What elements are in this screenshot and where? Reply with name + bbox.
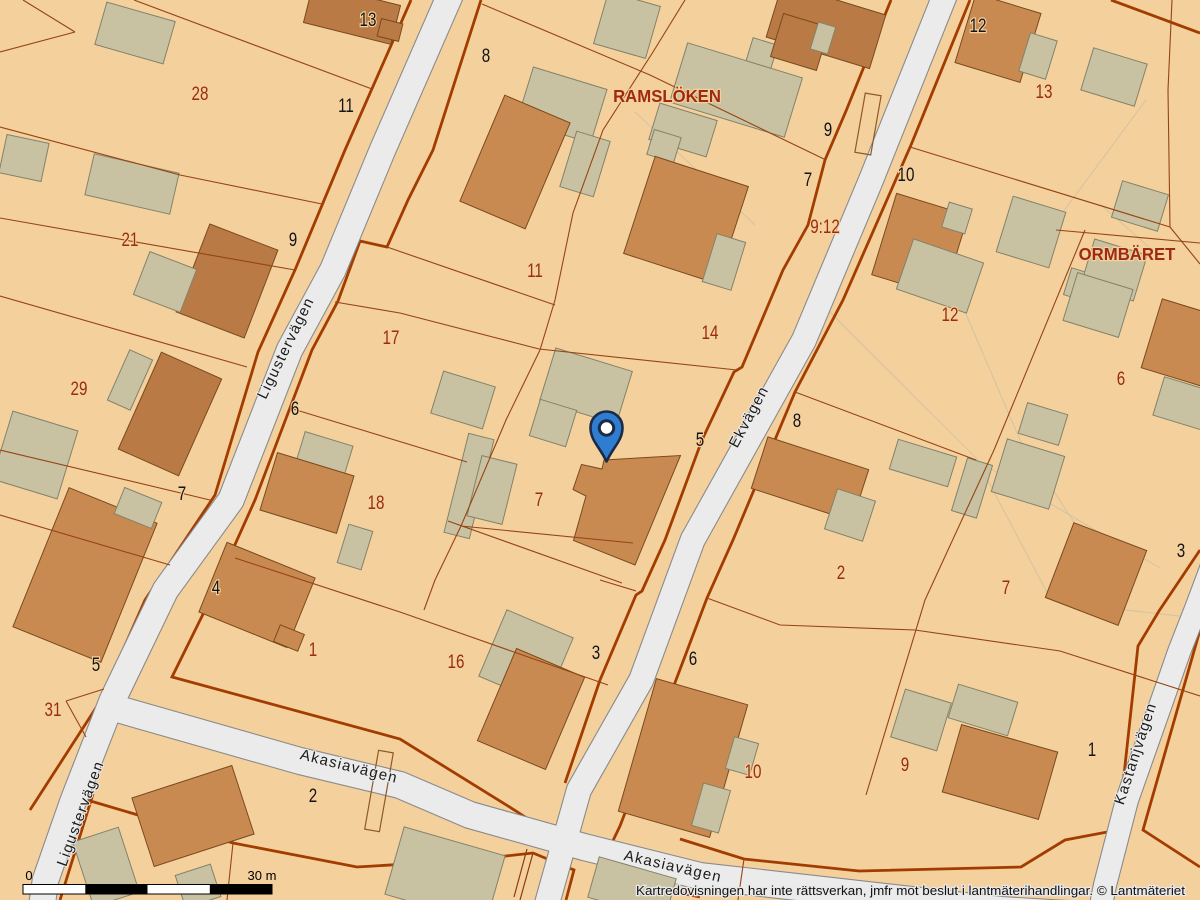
svg-text:Kartredovisningen har inte rät: Kartredovisningen har inte rättsverkan, … [636,884,1186,898]
svg-text:2: 2 [837,561,845,583]
svg-text:ORMBÄRET: ORMBÄRET [1079,243,1176,264]
svg-text:RAMSLÖKEN: RAMSLÖKEN [613,85,721,106]
svg-text:5: 5 [696,428,704,450]
svg-text:2: 2 [309,784,317,806]
svg-text:31: 31 [45,698,62,720]
svg-text:29: 29 [71,377,88,399]
svg-text:18: 18 [368,491,385,513]
svg-text:12: 12 [942,303,959,325]
svg-text:10: 10 [745,760,762,782]
svg-text:14: 14 [702,321,719,343]
svg-text:21: 21 [122,228,139,250]
svg-text:9:12: 9:12 [810,215,840,237]
svg-text:8: 8 [482,44,490,66]
svg-text:7: 7 [1002,576,1010,598]
svg-text:1: 1 [309,638,317,660]
svg-text:7: 7 [178,482,186,504]
svg-text:13: 13 [360,8,377,30]
svg-text:9: 9 [901,753,909,775]
svg-text:11: 11 [527,259,543,281]
svg-text:7: 7 [535,488,543,510]
svg-text:9: 9 [289,228,297,250]
svg-text:6: 6 [291,397,299,419]
svg-text:30 m: 30 m [248,868,277,883]
svg-text:9: 9 [824,118,832,140]
svg-text:16: 16 [448,650,465,672]
svg-text:7: 7 [804,168,812,190]
svg-text:28: 28 [192,82,209,104]
svg-text:6: 6 [1117,367,1125,389]
svg-text:4: 4 [212,576,221,598]
svg-text:11: 11 [338,94,354,116]
svg-text:8: 8 [793,409,801,431]
svg-text:10: 10 [898,163,915,185]
svg-text:0: 0 [25,868,32,883]
svg-text:12: 12 [970,14,987,36]
svg-text:1: 1 [1088,738,1096,760]
svg-text:3: 3 [1177,539,1185,561]
svg-text:13: 13 [1036,80,1053,102]
svg-text:6: 6 [689,647,697,669]
svg-text:3: 3 [592,641,600,663]
svg-text:5: 5 [92,653,100,675]
svg-text:17: 17 [383,326,400,348]
